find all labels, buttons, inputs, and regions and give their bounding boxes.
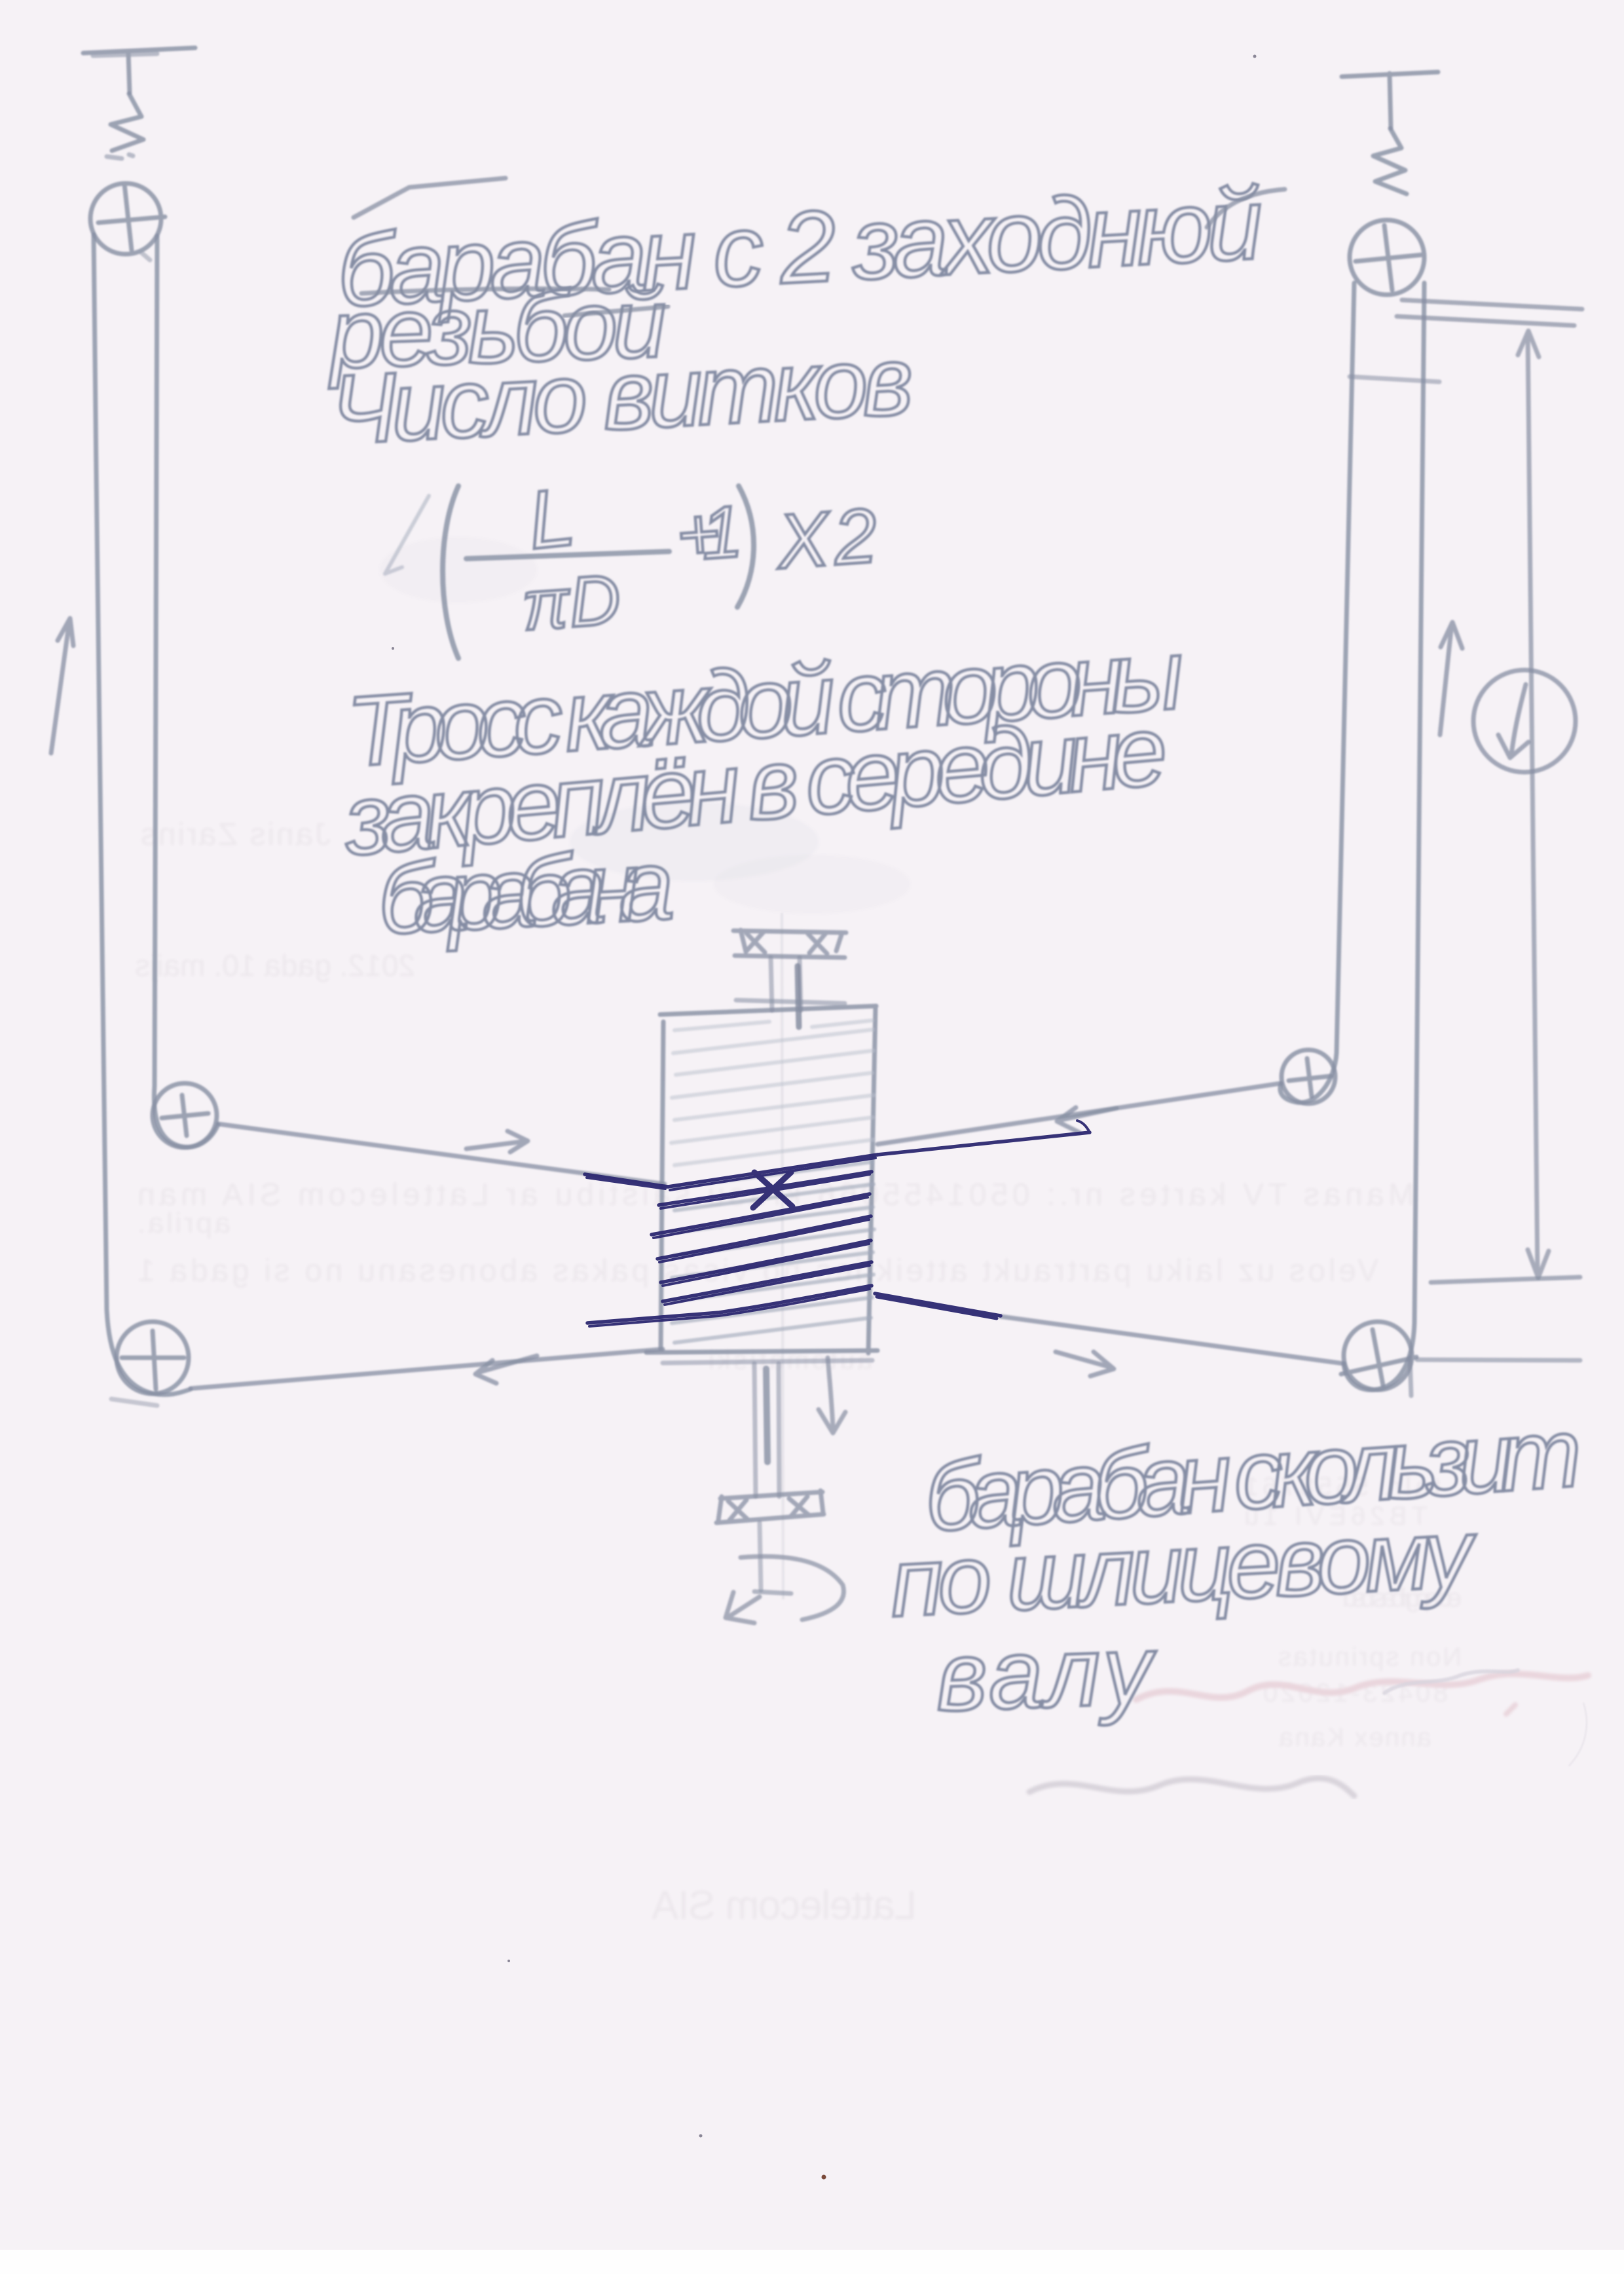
svg-text:L: L: [524, 471, 579, 567]
svg-text:Janis Zarins: Janis Zarins: [141, 817, 331, 852]
svg-text:валу: валу: [934, 1614, 1159, 1732]
svg-text:X2: X2: [773, 493, 880, 586]
svg-text:Lattelecom SIA: Lattelecom SIA: [651, 1883, 917, 1928]
svg-text:+1: +1: [674, 490, 745, 576]
svg-text:2012. gada 10. maijs: 2012. gada 10. maijs: [135, 948, 415, 982]
svg-text:annex Kana: annex Kana: [1278, 1723, 1431, 1752]
svg-text:Non sprinutas: Non sprinutas: [1278, 1643, 1462, 1671]
